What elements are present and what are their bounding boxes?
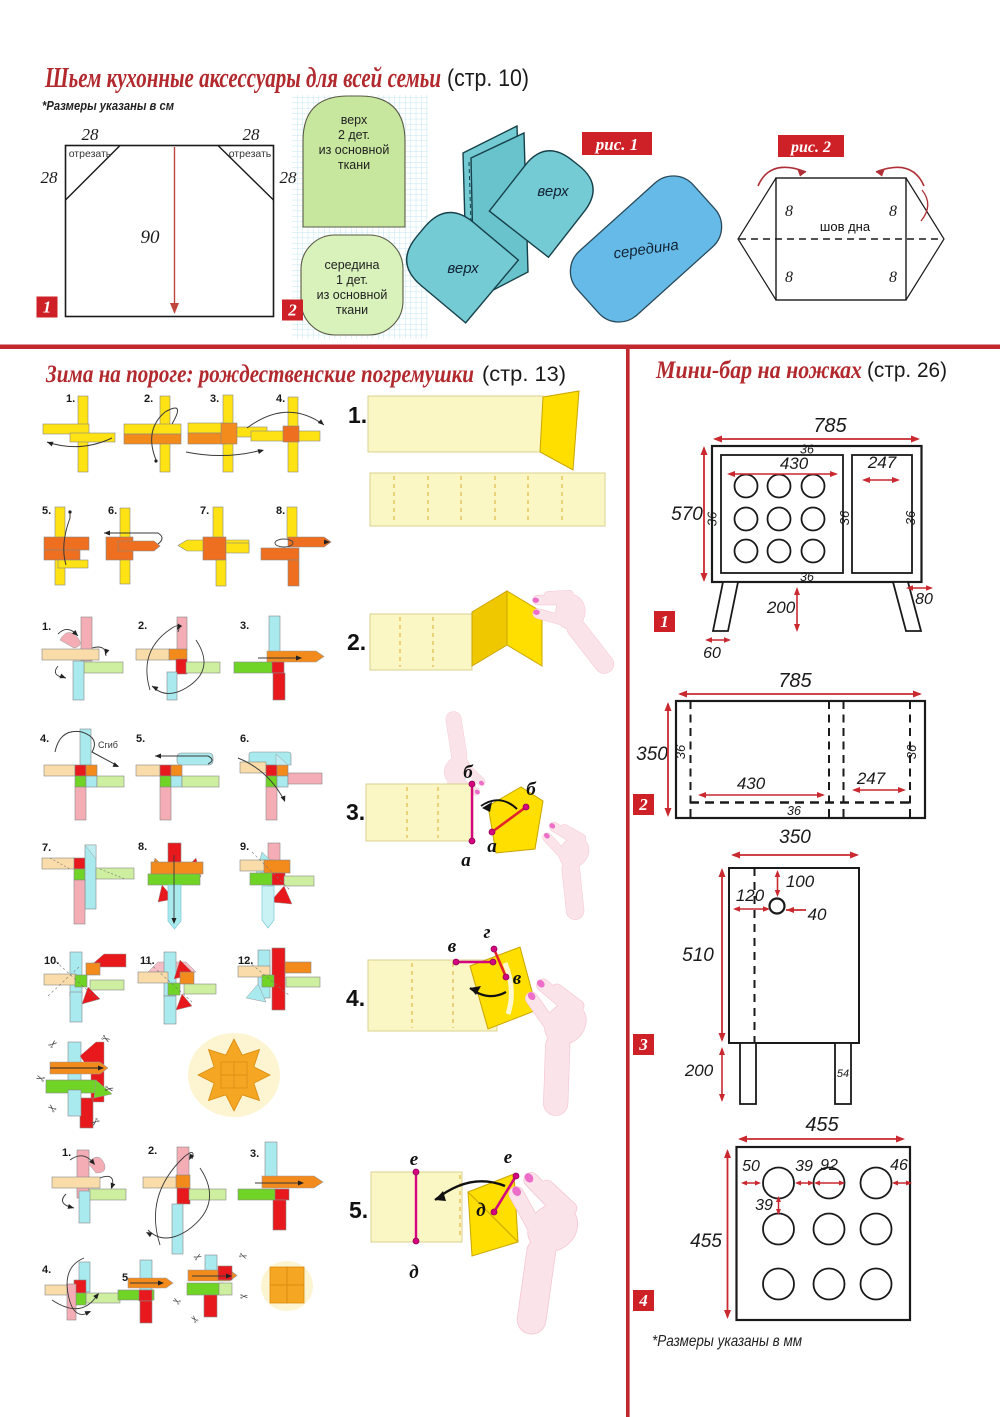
svg-text:4: 4 — [638, 1291, 648, 1310]
svg-text:350: 350 — [779, 827, 811, 848]
svg-text:рис. 2: рис. 2 — [789, 139, 831, 156]
svg-text:40: 40 — [808, 905, 827, 924]
svg-text:60: 60 — [703, 645, 721, 662]
svg-text:28: 28 — [82, 125, 100, 144]
svg-text:верх: верх — [341, 113, 368, 127]
svg-text:(стр. 13): (стр. 13) — [482, 363, 566, 386]
svg-text:10.: 10. — [44, 955, 59, 967]
svg-text:28: 28 — [243, 125, 261, 144]
svg-text:из основной: из основной — [319, 143, 390, 157]
svg-text:9.: 9. — [240, 841, 249, 853]
svg-text:(стр. 26): (стр. 26) — [867, 359, 947, 382]
svg-text:в: в — [448, 936, 457, 957]
svg-text:3: 3 — [638, 1035, 648, 1054]
svg-text:3.: 3. — [210, 393, 219, 405]
svg-text:455: 455 — [805, 1114, 839, 1136]
svg-text:8: 8 — [785, 269, 793, 286]
svg-text:3.: 3. — [240, 620, 249, 632]
svg-text:92: 92 — [820, 1157, 838, 1174]
svg-text:верх: верх — [447, 260, 479, 277]
svg-text:3.: 3. — [346, 799, 365, 825]
svg-text:2.: 2. — [138, 620, 147, 632]
svg-text:200: 200 — [766, 598, 796, 617]
svg-text:54: 54 — [837, 1068, 849, 1080]
svg-text:39: 39 — [795, 1158, 813, 1175]
svg-text:а: а — [461, 850, 471, 871]
svg-text:200: 200 — [684, 1061, 714, 1080]
svg-text:отрезать: отрезать — [69, 148, 112, 160]
svg-text:в: в — [513, 968, 522, 989]
svg-text:8.: 8. — [138, 841, 147, 853]
svg-text:Сгиб: Сгиб — [98, 740, 118, 750]
svg-text:36: 36 — [903, 510, 918, 525]
svg-text:8: 8 — [785, 203, 793, 220]
svg-text:шов дна: шов дна — [820, 219, 871, 234]
svg-text:6.: 6. — [108, 505, 117, 517]
svg-text:39: 39 — [755, 1197, 773, 1214]
svg-text:1.: 1. — [62, 1147, 71, 1159]
svg-text:Зима на пороге: рождественские: Зима на пороге: рождественские погремушк… — [45, 361, 474, 388]
svg-text:а: а — [487, 836, 497, 857]
svg-text:г: г — [483, 922, 490, 943]
svg-text:2: 2 — [638, 795, 648, 814]
svg-text:д: д — [409, 1262, 418, 1283]
svg-text:36: 36 — [787, 804, 801, 818]
svg-text:ткани: ткани — [336, 303, 368, 317]
svg-text:1: 1 — [660, 612, 669, 631]
svg-text:36: 36 — [673, 744, 688, 759]
svg-text:455: 455 — [690, 1231, 722, 1252]
svg-text:7.: 7. — [200, 505, 209, 517]
svg-text:7.: 7. — [42, 842, 51, 854]
svg-text:90: 90 — [141, 227, 161, 248]
svg-text:(стр. 10): (стр. 10) — [447, 65, 529, 92]
svg-text:2 дет.: 2 дет. — [338, 128, 370, 142]
svg-text:1.: 1. — [66, 393, 75, 405]
svg-text:5.: 5. — [349, 1197, 368, 1223]
svg-text:8.: 8. — [276, 505, 285, 517]
svg-text:8: 8 — [889, 203, 897, 220]
svg-text:2: 2 — [287, 301, 297, 320]
svg-text:б: б — [526, 779, 537, 800]
svg-text:50: 50 — [742, 1158, 760, 1175]
svg-text:б: б — [463, 762, 474, 783]
svg-text:Мини-бар на ножках: Мини-бар на ножках — [655, 357, 862, 384]
svg-text:д: д — [476, 1200, 485, 1221]
svg-text:247: 247 — [867, 453, 897, 472]
svg-text:2.: 2. — [144, 393, 153, 405]
svg-text:1 дет.: 1 дет. — [336, 273, 368, 287]
svg-text:3.: 3. — [250, 1148, 259, 1160]
svg-text:✂: ✂ — [240, 1292, 248, 1303]
svg-text:46: 46 — [890, 1157, 908, 1174]
svg-text:Шьем кухонные аксессуары для в: Шьем кухонные аксессуары для всей семьи — [44, 62, 441, 94]
svg-text:120: 120 — [736, 886, 765, 905]
svg-text:785: 785 — [813, 415, 847, 437]
svg-text:36: 36 — [800, 570, 814, 584]
svg-text:28: 28 — [41, 168, 59, 187]
svg-text:510: 510 — [682, 945, 714, 966]
svg-text:из основной: из основной — [317, 288, 388, 302]
svg-text:8: 8 — [889, 269, 897, 286]
svg-text:430: 430 — [737, 774, 766, 793]
svg-text:247: 247 — [856, 769, 886, 788]
svg-text:*Размеры указаны в см: *Размеры указаны в см — [42, 98, 174, 113]
svg-text:верх: верх — [537, 183, 569, 200]
svg-text:отрезать: отрезать — [229, 148, 272, 160]
svg-text:е: е — [504, 1147, 513, 1168]
svg-text:6.: 6. — [240, 733, 249, 745]
svg-text:середина: середина — [325, 258, 380, 272]
svg-text:5.: 5. — [136, 733, 145, 745]
svg-text:80: 80 — [915, 591, 933, 608]
svg-text:430: 430 — [780, 454, 809, 473]
svg-text:4.: 4. — [346, 985, 365, 1011]
svg-text:2.: 2. — [148, 1145, 157, 1157]
svg-text:12.: 12. — [238, 955, 253, 967]
svg-text:2.: 2. — [347, 629, 366, 655]
svg-text:ткани: ткани — [338, 158, 370, 172]
svg-text:рис. 1: рис. 1 — [594, 135, 639, 154]
svg-text:785: 785 — [778, 670, 812, 692]
svg-text:1.: 1. — [42, 621, 51, 633]
svg-text:4.: 4. — [40, 733, 49, 745]
svg-text:100: 100 — [786, 872, 815, 891]
svg-text:36: 36 — [837, 510, 852, 525]
svg-text:570: 570 — [671, 504, 703, 525]
svg-text:4.: 4. — [276, 393, 285, 405]
svg-text:1.: 1. — [348, 402, 367, 428]
svg-text:*Размеры указаны в мм: *Размеры указаны в мм — [652, 1333, 802, 1350]
svg-text:е: е — [410, 1149, 419, 1170]
svg-text:5.: 5. — [42, 505, 51, 517]
svg-text:36: 36 — [705, 511, 720, 526]
svg-text:350: 350 — [636, 744, 668, 765]
svg-text:1: 1 — [43, 298, 52, 317]
svg-text:36: 36 — [904, 744, 919, 759]
svg-text:4.: 4. — [42, 1264, 51, 1276]
